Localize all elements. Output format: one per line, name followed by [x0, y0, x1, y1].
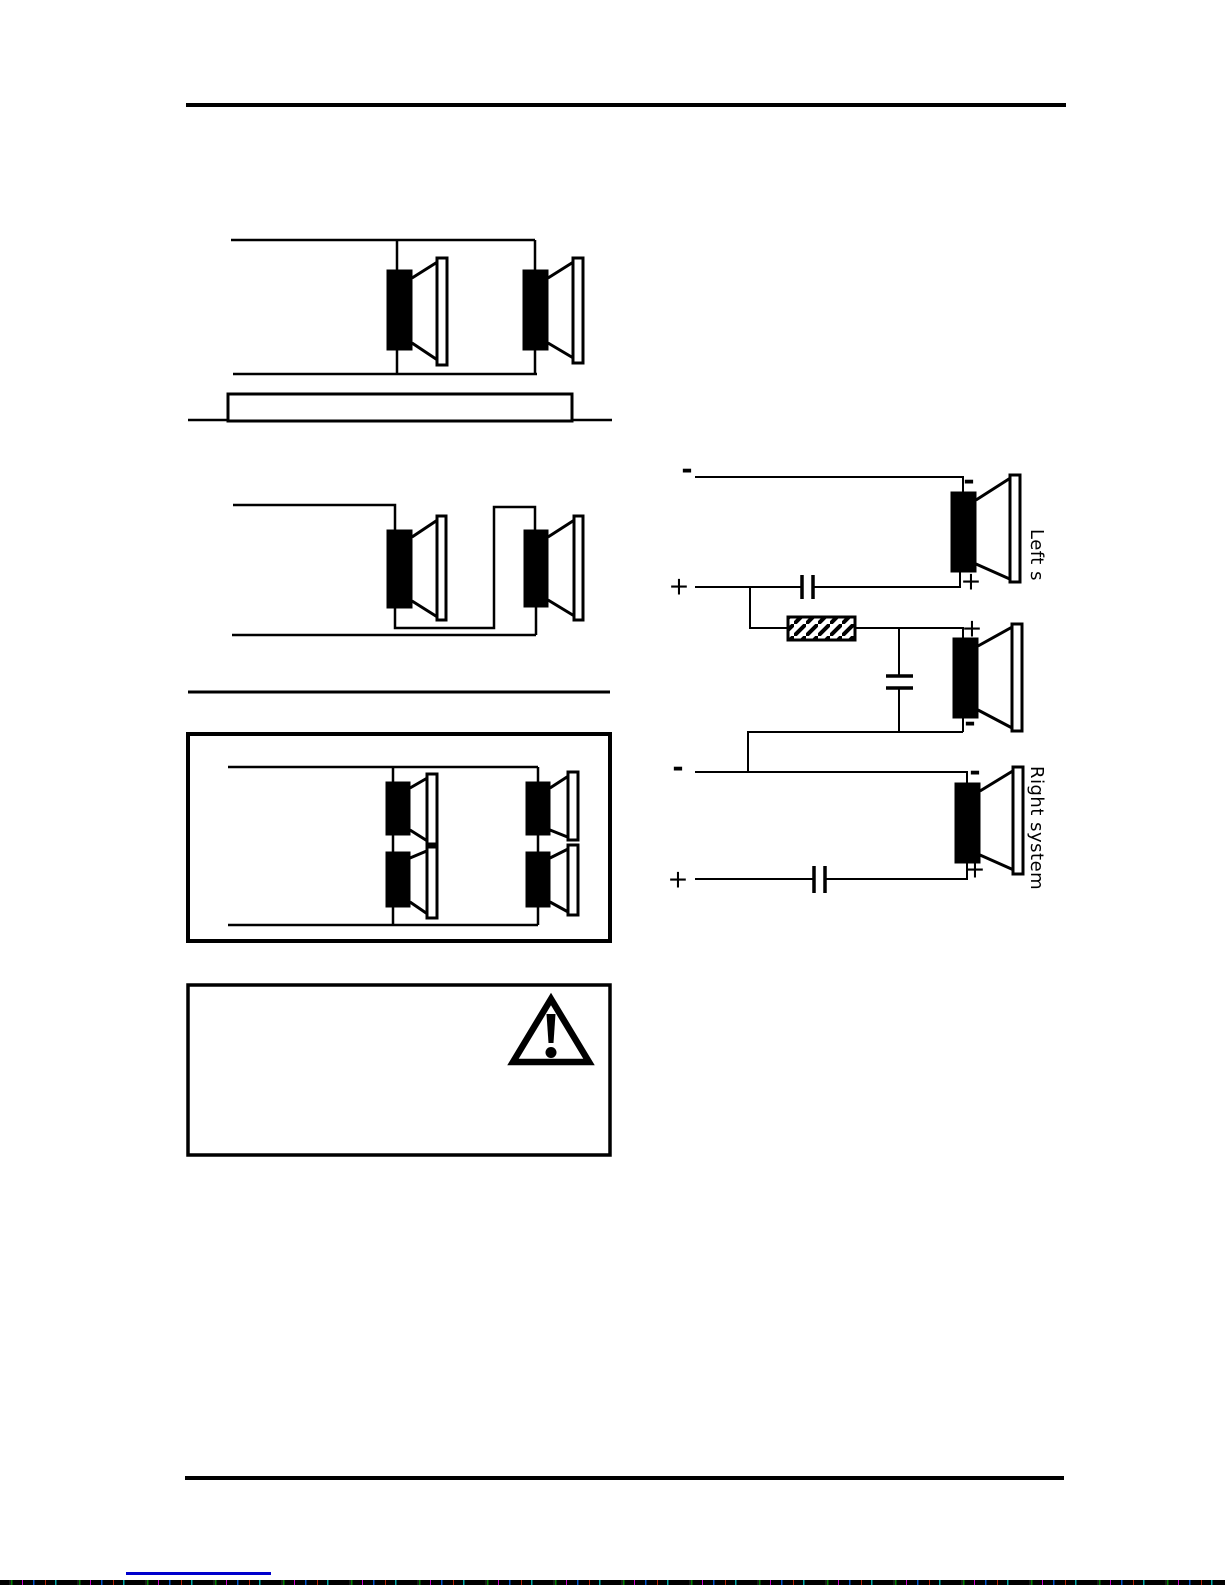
four-speaker-cabinet-diagram [188, 734, 610, 941]
speaker-plus-label: + [961, 569, 982, 594]
speaker-magnet [523, 270, 548, 350]
warning-box [188, 985, 610, 1155]
cabinet-box [188, 734, 610, 941]
speaker [524, 516, 583, 620]
speaker-cone [412, 519, 439, 537]
speaker-cone [548, 261, 575, 278]
speaker [526, 845, 578, 915]
speaker-panel [427, 774, 437, 844]
speaker-magnet [524, 530, 548, 607]
speaker-cone [412, 343, 439, 361]
speaker-plus-label: + [965, 857, 986, 882]
speaker [387, 516, 446, 620]
speaker-magnet [526, 782, 550, 835]
speaker-panel [568, 845, 578, 915]
speaker [386, 847, 437, 918]
terminal-minus-label: - [681, 457, 692, 484]
speaker-magnet [953, 638, 978, 718]
parallel-wiring-diagram [188, 240, 612, 421]
speaker-magnet [386, 852, 410, 907]
speaker-panel [1012, 624, 1022, 731]
speaker [387, 258, 447, 365]
speaker-cone [976, 477, 1012, 500]
amplifier-bar [228, 394, 572, 421]
speaker-cone [412, 261, 439, 278]
capacitor [802, 575, 813, 599]
wire [232, 505, 536, 635]
speaker-magnet [387, 530, 412, 608]
speaker [523, 258, 583, 363]
speaker-panel [573, 258, 583, 363]
left-system-label: Left s [1027, 529, 1045, 581]
footer-rule [185, 1476, 1064, 1480]
terminal-plus-label: + [669, 574, 690, 599]
speaker-magnet [387, 270, 412, 350]
speaker-cone [548, 519, 576, 537]
speaker-cone [548, 600, 576, 617]
speaker [526, 772, 578, 840]
speaker-minus-label: - [963, 468, 974, 495]
crossover-diagram [695, 475, 1023, 893]
speaker [386, 774, 437, 844]
speaker-cone [980, 769, 1016, 791]
speaker-minus-label: - [964, 710, 975, 737]
terminal-plus-label: + [668, 867, 689, 892]
speaker-panel [437, 258, 447, 365]
speaker-panel [568, 772, 578, 840]
wire [695, 477, 963, 587]
footer-noise-strip [0, 1580, 1225, 1585]
speaker-minus-label: - [969, 759, 980, 786]
exclamation-dot [546, 1047, 557, 1058]
wire [228, 767, 538, 925]
right-system-label: Right system [1027, 766, 1045, 890]
speaker-panel [427, 847, 437, 918]
manual-page: - + - + + - - - + + Left s Right system [0, 0, 1225, 1585]
resistor [788, 617, 855, 640]
speaker-magnet [386, 782, 410, 835]
capacitor [814, 866, 825, 893]
terminal-minus-label: - [672, 755, 683, 782]
speaker-cone [548, 343, 575, 359]
wire [695, 772, 967, 879]
speaker-panel [1010, 475, 1020, 582]
speaker-cone [978, 710, 1014, 729]
warning-icon [513, 999, 589, 1062]
wire [231, 240, 537, 374]
speaker-panel [1013, 767, 1023, 874]
speaker-magnet [526, 852, 550, 907]
speaker-cone [412, 601, 439, 618]
speaker-plus-label: + [962, 616, 983, 641]
footer-link-underline[interactable] [126, 1572, 271, 1575]
wire [748, 587, 963, 772]
speaker-magnet [951, 492, 976, 572]
speaker-cone [978, 626, 1014, 646]
shunt-capacitor [886, 676, 913, 688]
speaker-panel [437, 516, 446, 620]
series-wiring-diagram [188, 505, 610, 692]
speaker-magnet [955, 783, 980, 863]
speaker-panel [574, 516, 583, 620]
